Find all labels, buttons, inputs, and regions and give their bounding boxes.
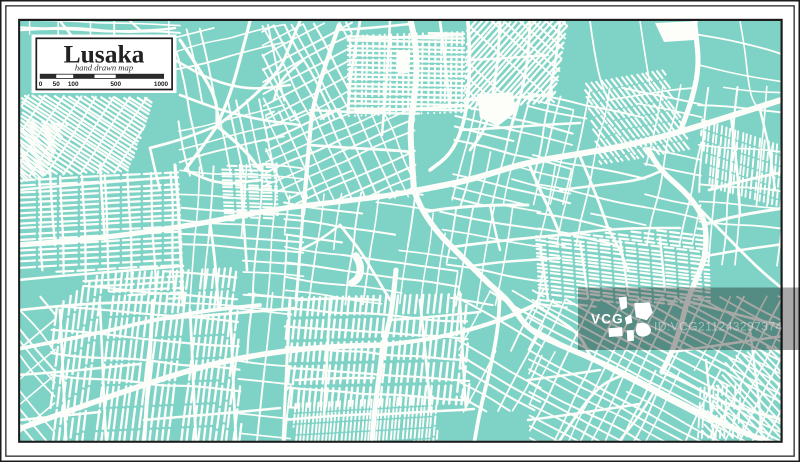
svg-text:VCG: VCG: [591, 312, 624, 327]
svg-text:100: 100: [68, 81, 79, 88]
svg-text:ID:VCG211243297374: ID:VCG211243297374: [654, 320, 783, 334]
svg-text:0: 0: [39, 81, 43, 88]
svg-text:50: 50: [53, 81, 61, 88]
svg-text:1000: 1000: [154, 81, 169, 88]
svg-text:500: 500: [110, 81, 121, 88]
svg-text:hand drawn map: hand drawn map: [75, 63, 134, 73]
